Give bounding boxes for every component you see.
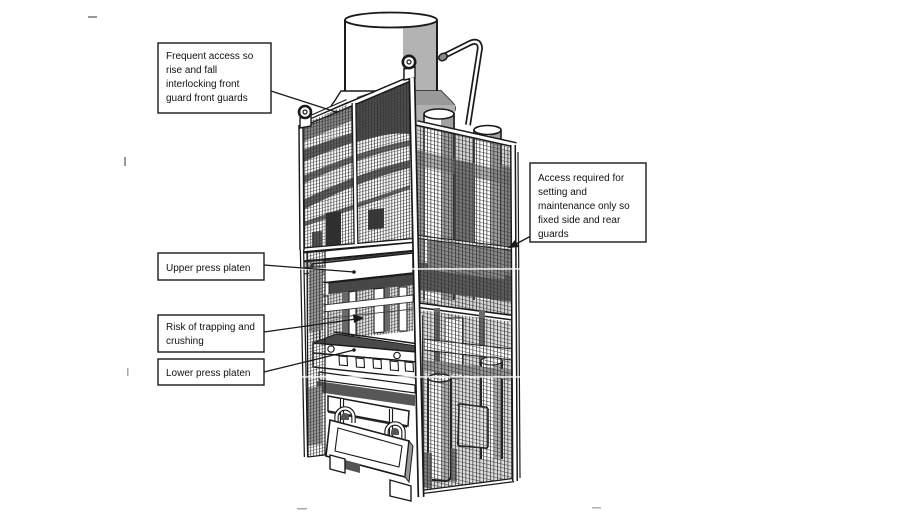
svg-text:guard front guards: guard front guards xyxy=(166,93,248,104)
svg-text:fixed side and rear: fixed side and rear xyxy=(538,215,621,226)
svg-text:setting and: setting and xyxy=(538,187,587,198)
svg-text:maintenance only so: maintenance only so xyxy=(538,201,630,212)
svg-text:Lower press platen: Lower press platen xyxy=(166,368,251,379)
svg-text:Upper press platen: Upper press platen xyxy=(166,263,251,274)
svg-text:Risk of trapping and: Risk of trapping and xyxy=(166,322,255,333)
svg-text:guards: guards xyxy=(538,229,569,240)
svg-text:Access required for: Access required for xyxy=(538,173,625,184)
svg-text:Frequent access so: Frequent access so xyxy=(166,51,254,62)
svg-text:crushing: crushing xyxy=(166,336,204,347)
svg-text:rise and fall: rise and fall xyxy=(166,65,217,76)
svg-text:interlocking front: interlocking front xyxy=(166,79,240,90)
